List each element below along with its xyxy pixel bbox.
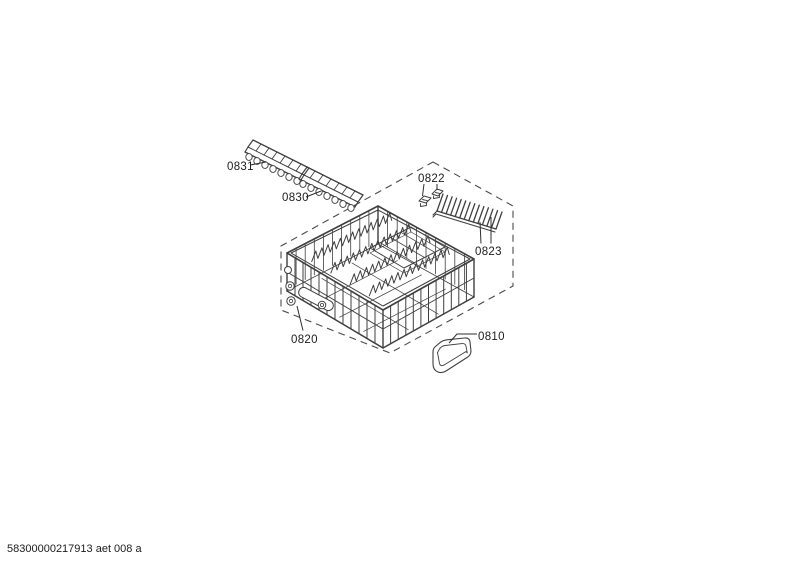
part-label-0823: 0823 [475, 246, 502, 258]
part-drawing-lower-basket [285, 206, 475, 348]
part-drawing-fold-down-rack [433, 194, 502, 232]
part-drawing-tine-row-lower [299, 167, 363, 211]
parts-diagram-page: 0831 0830 0822 0823 0820 0810 5830000021… [0, 0, 800, 566]
part-label-0822: 0822 [418, 173, 445, 185]
part-label-0830: 0830 [282, 192, 309, 204]
exploded-parts-drawing: 0831 0830 0822 0823 0820 0810 5830000021… [0, 0, 800, 566]
part-label-0810: 0810 [478, 331, 505, 343]
part-drawing-tray-insert [433, 338, 471, 373]
part-label-0831: 0831 [227, 161, 254, 173]
leader-0820 [297, 306, 303, 331]
document-code: 58300000217913 aet 008 a [7, 543, 142, 555]
part-label-0820: 0820 [291, 334, 318, 346]
